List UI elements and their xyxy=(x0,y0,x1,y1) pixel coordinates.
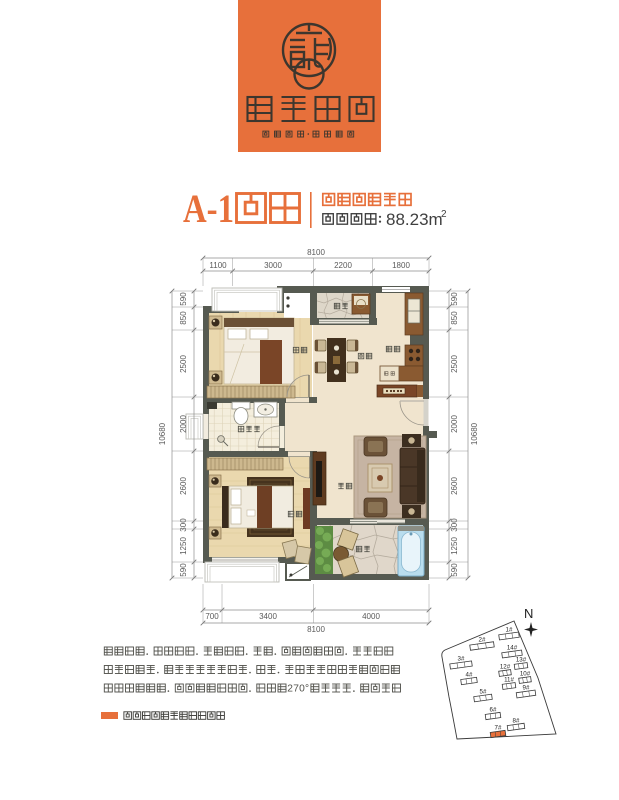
svg-text:2200: 2200 xyxy=(334,261,352,270)
svg-text:1800: 1800 xyxy=(392,261,410,270)
svg-text:8#: 8# xyxy=(513,717,520,724)
svg-text:2600: 2600 xyxy=(179,477,188,495)
svg-text:A-1: A-1 xyxy=(183,186,234,231)
svg-text:13#: 13# xyxy=(516,656,527,663)
svg-text:88.23m: 88.23m xyxy=(386,210,443,229)
svg-text:4000: 4000 xyxy=(362,612,380,621)
svg-text:10680: 10680 xyxy=(470,422,479,445)
svg-text:10680: 10680 xyxy=(158,422,167,445)
svg-text:8100: 8100 xyxy=(307,625,325,634)
svg-text:1#: 1# xyxy=(506,626,513,633)
svg-text:700: 700 xyxy=(205,612,219,621)
svg-text:300: 300 xyxy=(450,518,459,532)
svg-text:14#: 14# xyxy=(507,644,518,651)
svg-text:N: N xyxy=(524,606,533,621)
svg-text:590: 590 xyxy=(450,563,459,577)
svg-text:1250: 1250 xyxy=(179,537,188,555)
svg-text:2000: 2000 xyxy=(450,415,459,433)
svg-text:6#: 6# xyxy=(490,706,497,713)
svg-text:2600: 2600 xyxy=(450,477,459,495)
svg-text:590: 590 xyxy=(450,292,459,306)
svg-text:300: 300 xyxy=(179,518,188,532)
svg-text:7#: 7# xyxy=(495,724,502,731)
svg-text:12#: 12# xyxy=(500,663,511,670)
svg-text:1100: 1100 xyxy=(209,261,227,270)
svg-text:8100: 8100 xyxy=(307,248,325,257)
svg-text:5#: 5# xyxy=(480,688,487,695)
svg-text:4#: 4# xyxy=(466,671,473,678)
svg-text:3000: 3000 xyxy=(264,261,282,270)
svg-text:9#: 9# xyxy=(523,684,530,691)
svg-text:2500: 2500 xyxy=(179,355,188,373)
svg-text:11#: 11# xyxy=(504,676,514,683)
svg-text:3#: 3# xyxy=(458,655,465,662)
svg-text:590: 590 xyxy=(179,563,188,577)
svg-text:2: 2 xyxy=(441,209,447,220)
svg-text:1250: 1250 xyxy=(450,537,459,555)
svg-text:2000: 2000 xyxy=(179,415,188,433)
svg-text:3400: 3400 xyxy=(259,612,277,621)
svg-text:10#: 10# xyxy=(520,670,531,677)
svg-text:2500: 2500 xyxy=(450,355,459,373)
svg-text:2#: 2# xyxy=(479,636,486,643)
svg-text:850: 850 xyxy=(179,311,188,325)
svg-text:°: ° xyxy=(305,684,309,695)
svg-text:590: 590 xyxy=(179,292,188,306)
svg-text:850: 850 xyxy=(450,311,459,325)
